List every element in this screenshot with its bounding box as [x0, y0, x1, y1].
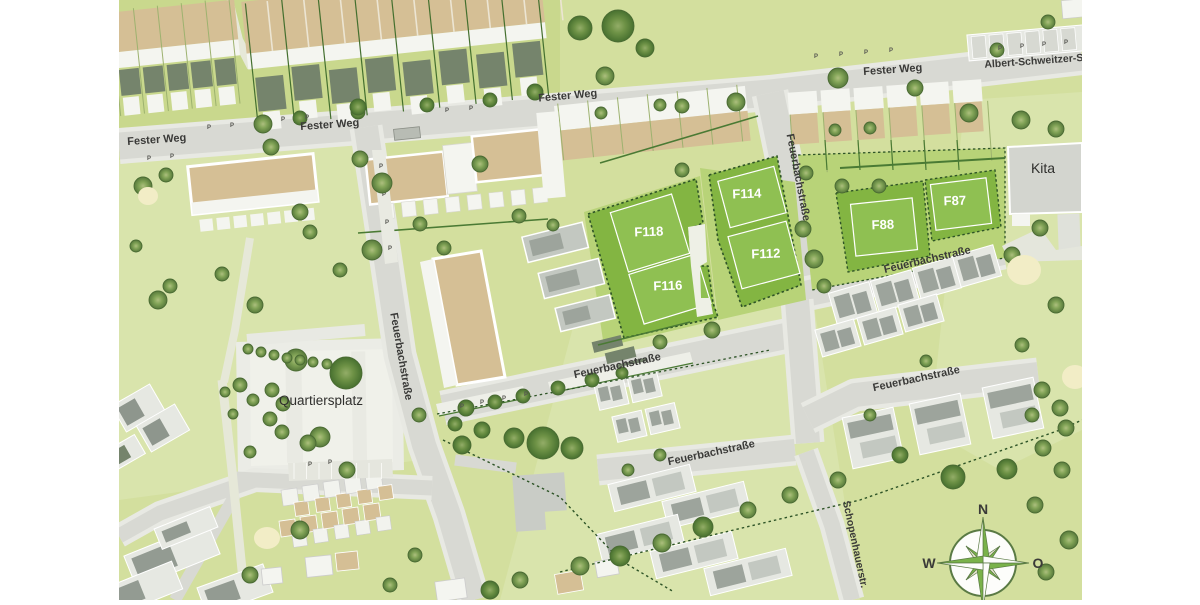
svg-text:P: P: [1064, 40, 1068, 46]
svg-text:P: P: [502, 396, 506, 402]
svg-text:P: P: [1042, 42, 1046, 48]
svg-text:W: W: [922, 555, 936, 571]
svg-text:P: P: [864, 50, 868, 56]
svg-text:P: P: [305, 115, 309, 121]
svg-text:O: O: [1033, 555, 1044, 571]
svg-text:P: P: [308, 462, 312, 468]
svg-text:P: P: [328, 460, 332, 466]
svg-text:P: P: [814, 54, 818, 60]
svg-text:P: P: [230, 123, 234, 129]
svg-text:F114: F114: [732, 185, 762, 201]
svg-text:P: P: [147, 156, 151, 162]
svg-text:P: P: [385, 220, 389, 226]
svg-text:P: P: [460, 404, 464, 410]
svg-text:P: P: [889, 48, 893, 54]
svg-text:F87: F87: [943, 193, 966, 209]
svg-text:P: P: [469, 106, 473, 112]
svg-text:F116: F116: [653, 278, 682, 294]
svg-text:Quartiersplatz: Quartiersplatz: [279, 393, 363, 408]
svg-text:P: P: [1020, 44, 1024, 50]
svg-text:P: P: [445, 108, 449, 114]
svg-text:N: N: [978, 501, 988, 517]
svg-text:F112: F112: [751, 246, 780, 262]
svg-text:P: P: [379, 164, 383, 170]
svg-text:P: P: [281, 117, 285, 123]
svg-text:P: P: [839, 52, 843, 58]
svg-text:F88: F88: [871, 217, 894, 233]
svg-text:P: P: [388, 246, 392, 252]
svg-text:P: P: [170, 154, 174, 160]
svg-text:P: P: [207, 125, 211, 131]
svg-text:P: P: [524, 392, 528, 398]
svg-text:F118: F118: [634, 224, 663, 240]
svg-text:P: P: [480, 400, 484, 406]
svg-text:Kita: Kita: [1031, 160, 1055, 176]
svg-text:P: P: [998, 46, 1002, 52]
